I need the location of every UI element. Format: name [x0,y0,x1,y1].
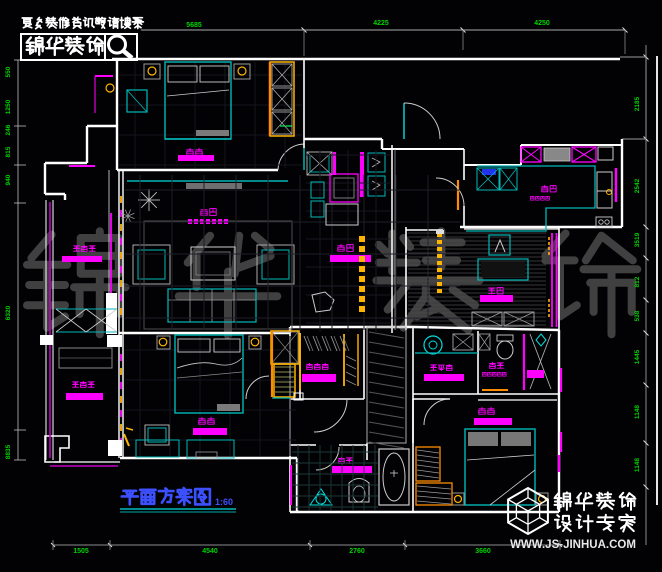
svg-text:4225: 4225 [373,20,389,27]
svg-text:538: 538 [634,310,641,321]
svg-text:1:60: 1:60 [215,497,233,507]
svg-text:1148: 1148 [634,458,641,472]
svg-text:815: 815 [5,146,12,157]
svg-text:2185: 2185 [634,96,641,111]
svg-text:5685: 5685 [186,22,202,29]
svg-text:3519: 3519 [634,232,641,247]
svg-text:2760: 2760 [349,548,365,555]
svg-text:1505: 1505 [73,548,89,555]
svg-text:940: 940 [5,174,12,185]
svg-text:6320: 6320 [5,305,12,320]
svg-text:1250: 1250 [5,99,12,114]
svg-text:550: 550 [5,66,12,77]
svg-text:1148: 1148 [634,405,641,419]
svg-text:1445: 1445 [634,349,641,364]
svg-text:4540: 4540 [202,548,218,555]
svg-text:8835: 8835 [5,444,12,459]
svg-text:2542: 2542 [634,178,641,193]
svg-text:3660: 3660 [475,548,491,555]
svg-text:WWW.JS-JINHUA.COM: WWW.JS-JINHUA.COM [510,539,636,551]
svg-text:812: 812 [634,276,641,287]
svg-text:4250: 4250 [534,20,550,27]
svg-text:246: 246 [5,124,12,135]
